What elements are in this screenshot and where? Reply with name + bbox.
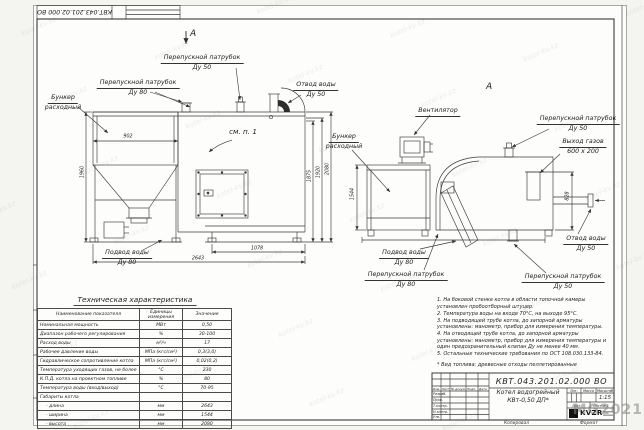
spec-row: Рабочее давление водыМПа (кгс/см²)0,3(3,… bbox=[38, 348, 232, 357]
note-item: 1. На боковой стенке котла в области топ… bbox=[437, 297, 615, 310]
spec-row: Температура воды (вход/выход)°С70-95 bbox=[38, 384, 232, 393]
col-list: Лист bbox=[442, 387, 450, 391]
furnace-door bbox=[196, 170, 248, 218]
row-tkontr: Т.контр. bbox=[433, 404, 448, 408]
spec-row: Гидравлическое сопротивление котлаМПа (к… bbox=[38, 357, 232, 366]
spec-row: К.П.Д. котла на проектном топливе%80 bbox=[38, 375, 232, 384]
front-hopper bbox=[90, 112, 182, 242]
row-prov: Пров. bbox=[433, 398, 443, 402]
spec-row: Температура уходящих газов, не более°С23… bbox=[38, 366, 232, 375]
product-name: Котел водогрейный КВт-0,50 ДП* bbox=[489, 389, 567, 405]
front-view-dimensions bbox=[84, 112, 333, 264]
lit-label: Лит. bbox=[570, 389, 578, 393]
spec-row: Габариты котла bbox=[38, 393, 232, 402]
drawing-photo: КВТ.043.201.02.000 ВО А А Бункер расходн… bbox=[0, 0, 644, 430]
spec-row: Расход водым³/ч17 bbox=[38, 339, 232, 348]
label-side-bypass-80: Перепускной патрубок Ду 80 bbox=[365, 271, 448, 290]
label-front-water-out: Отвод воды Ду 50 bbox=[293, 81, 338, 100]
note-item: 4. На отводящей трубе котла, до запорной… bbox=[437, 331, 615, 351]
front-top-fittings bbox=[180, 88, 305, 119]
format-label: Формат bbox=[580, 421, 598, 426]
note-item: 5. Остальные технические требования по О… bbox=[437, 351, 615, 358]
spec-header: Единицы измерения bbox=[140, 309, 183, 321]
spec-header: Наименование показателя bbox=[38, 309, 140, 321]
spec-header-row: Наименование показателя Единицы измерени… bbox=[38, 309, 232, 321]
label-fan: Вентилятор bbox=[415, 107, 460, 117]
dim-1920: 1920 bbox=[317, 166, 322, 178]
dim-1078: 1078 bbox=[251, 247, 263, 252]
fuel-type-note: * Вид топлива: древесные отходы пеллетир… bbox=[437, 362, 615, 369]
dim-1875: 1875 bbox=[308, 170, 313, 182]
mass-label: Масса bbox=[583, 389, 594, 393]
label-side-bypass-50-bottom: Перепускной патрубок Ду 50 bbox=[522, 273, 605, 292]
spec-table-title: Техническая характеристика bbox=[74, 295, 197, 306]
dim-1544: 1544 bbox=[351, 188, 356, 200]
dim-902: 902 bbox=[123, 135, 132, 140]
section-letter-a-right: А bbox=[486, 82, 492, 92]
watermark-year: MG2021 bbox=[573, 402, 643, 418]
label-front-water-in: Подвод воды Ду 80 bbox=[102, 249, 152, 268]
side-hopper bbox=[367, 165, 430, 236]
dim-2643: 2643 bbox=[192, 257, 204, 262]
scale-value: 1:15 bbox=[596, 393, 614, 402]
dim-2080: 2080 bbox=[326, 163, 331, 175]
technical-notes: 1. На боковой стенке котла в области топ… bbox=[437, 297, 615, 369]
top-stamp-number: КВТ.043.201.02.000 ВО bbox=[37, 5, 112, 19]
col-izm: Изм. bbox=[433, 387, 440, 391]
see-item-note: см. п. 1 bbox=[229, 127, 257, 136]
side-view-dimensions bbox=[355, 165, 574, 230]
spec-header: Значение bbox=[183, 309, 232, 321]
col-data: Дата bbox=[479, 387, 487, 391]
spec-row: - длинамм2643 bbox=[38, 402, 232, 411]
label-front-hopper: Бункер расходный bbox=[45, 94, 81, 113]
fan bbox=[398, 137, 433, 163]
dim-1960: 1960 bbox=[81, 166, 86, 178]
kopiroval-label: Копировал bbox=[504, 421, 529, 426]
spec-row: - высотамм2080 bbox=[38, 420, 232, 429]
label-side-hopper: Бункер расходный bbox=[326, 133, 362, 152]
section-letter-a-left: А bbox=[190, 29, 196, 39]
row-utv: Утв. bbox=[433, 415, 440, 419]
label-gas-outlet: Выход газов 600 x 200 bbox=[559, 138, 606, 157]
label-front-bypass-80: Перепускной патрубок Ду 80 bbox=[97, 79, 180, 98]
spec-row: - ширинамм1544 bbox=[38, 411, 232, 420]
note-item: 3. На подводящей трубе котла, до запорно… bbox=[437, 318, 615, 331]
label-side-water-out: Отвод воды Ду 50 bbox=[563, 235, 608, 254]
col-podp: Подп. bbox=[467, 387, 476, 391]
title-block-doc-number: КВТ.043.201.02.000 ВО bbox=[489, 373, 614, 388]
spec-row: Диапазон рабочего регулирования%30-100 bbox=[38, 330, 232, 339]
row-razrab: Разраб. bbox=[433, 392, 446, 396]
col-ndoc: № докум. bbox=[451, 387, 466, 391]
spec-row: Номинальная мощностьМВт0,50 bbox=[38, 321, 232, 330]
label-front-bypass-50: Перепускной патрубок Ду 50 bbox=[161, 54, 244, 73]
note-item: 2. Температура воды на входе 70°С, на вы… bbox=[437, 311, 615, 318]
row-nkontr: Н.контр. bbox=[433, 410, 448, 414]
label-side-bypass-50-top: Перепускной патрубок Ду 50 bbox=[537, 115, 620, 134]
spec-table: Наименование показателя Единицы измерени… bbox=[37, 308, 232, 429]
dim-828: 828 bbox=[566, 191, 571, 200]
label-side-water-in: Подвод воды Ду 80 bbox=[379, 249, 429, 268]
